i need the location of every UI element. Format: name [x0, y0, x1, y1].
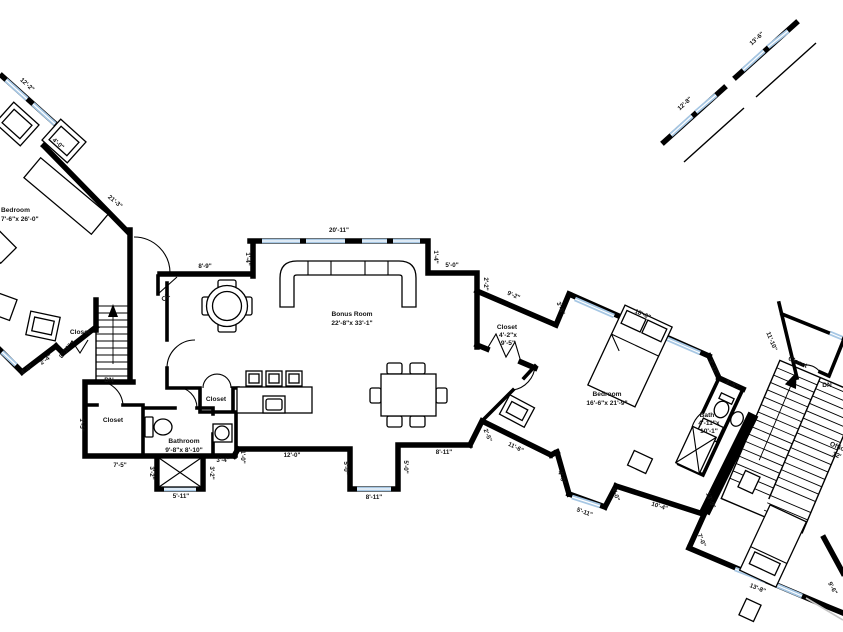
armchair-2 — [42, 119, 86, 163]
room-size-bedroom-left: 7'-6"x 26'-0" — [1, 216, 39, 223]
room-size-closet-corridor-1: 4'-2"x — [499, 332, 517, 339]
door-arc-bonus-west — [167, 340, 195, 368]
dim-bonus-left-step: 1'-4" — [244, 252, 251, 265]
dim-deck-b: 13'-6" — [748, 31, 765, 47]
dim-closet-right-wall: 11'-10" — [764, 331, 778, 352]
dim-bonus-left-jog: 8'-9" — [198, 263, 211, 270]
dim-bonus-right-jog: 5'-0" — [445, 262, 458, 269]
room-label-closet-corridor: Closet — [497, 324, 518, 331]
room-size-bedroom-right: 16'-6"x 21'-9" — [586, 400, 627, 407]
room-size-bath-1: 4'-11"x — [698, 420, 720, 427]
room-size-bathroom: 9'-8"x 8'-10" — [165, 447, 203, 454]
toilet-left — [145, 417, 172, 437]
room-size-bath-2: 10'-1" — [700, 428, 718, 435]
tub — [159, 458, 201, 487]
dim-bonus-right-step: 1'-4" — [432, 250, 439, 263]
dim-bump-r: 5'-0" — [402, 460, 409, 473]
dim-corridor-step: 2'-2" — [482, 277, 489, 290]
armchair-3 — [26, 311, 60, 341]
dim-bonus-top: 20'-11" — [329, 227, 349, 234]
kitchen-counter — [237, 371, 312, 413]
dim-deck-a: 12'-8" — [676, 96, 693, 112]
dim-corridor-top: 9'-2" — [506, 290, 521, 302]
room-label-bedroom-left: Bedroom — [1, 207, 30, 214]
floor-plan-page: Bedroom 7'-6"x 26'-0" Bonus Room 22'-8"x… — [0, 0, 843, 632]
round-table — [202, 280, 252, 332]
dim-bonus-bottom: 8'-11" — [436, 449, 453, 456]
room-label-bonus: Bonus Room — [331, 311, 372, 318]
floor-plan-canvas: Bedroom 7'-6"x 26'-0" Bonus Room 22'-8"x… — [0, 0, 843, 632]
staircase-left — [96, 300, 130, 380]
dim-br-jog2: 3'-5" — [724, 379, 739, 391]
stairs-right-dn-label: DN — [822, 382, 832, 389]
room-label-closet-kitchen: Closet — [206, 396, 227, 403]
cut-chair-2 — [0, 292, 17, 321]
door-arc-closet-kitchen — [203, 374, 231, 388]
room-label-bathroom: Bathroom — [168, 438, 199, 445]
stairs-left-dn-label: DN — [104, 377, 114, 384]
dim-br-jog1: 3'-11" — [706, 358, 720, 376]
dim-brb-win: 13'-8" — [748, 582, 766, 595]
dim-tub-win: 5'-11" — [173, 493, 190, 500]
dim-kitchen-wall: 12'-0" — [284, 452, 301, 459]
table-bottom-right — [739, 598, 761, 621]
room-label-bedroom-right: Bedroom — [593, 391, 622, 398]
dim-brb-right: 9'-6" — [826, 581, 838, 596]
room-label-closet-lower-left: Closet — [103, 417, 124, 424]
dim-ext-c: 8'-10" — [58, 342, 74, 360]
room-label-cl: CL — [160, 292, 171, 303]
armchair-1 — [0, 102, 39, 146]
bed-bottom-right — [740, 505, 807, 587]
room-label-closet-upper-left: Closet — [70, 329, 91, 336]
dim-tub-r: 3'-2" — [208, 466, 215, 479]
dim-bump-l: 5'-0" — [342, 461, 349, 474]
dim-bump-win: 8'-11" — [366, 494, 383, 501]
room-size-bonus: 22'-8"x 33'-1" — [331, 320, 372, 327]
dim-kitchen-step: 1'-0" — [239, 450, 246, 463]
dim-closet-left-h: 1'-5" — [78, 418, 85, 431]
dim-se-jog: 2'-5" — [482, 428, 494, 443]
cut-chair-1 — [0, 231, 16, 264]
exterior-walls — [0, 23, 843, 613]
nightstand-right — [628, 451, 653, 474]
room-size-closet-corridor-2: 9'-5" — [501, 340, 515, 347]
dim-wall-7-0: 7'-0" — [696, 533, 708, 548]
dining-table — [370, 363, 447, 427]
dim-tub-l: 3'-2" — [148, 466, 155, 479]
door-arc-bathroom — [176, 387, 197, 408]
sink-left — [213, 424, 232, 442]
dimension-labels: 12'-2" 4'-0" 21'-3" 4'-0" 2'-4" 8'-10" 1… — [18, 31, 838, 596]
sectional-sofa — [280, 261, 416, 307]
room-label-bath: Bath — [700, 412, 715, 419]
dim-closet-left-w: 7'-5" — [113, 462, 126, 469]
door-arc-hall — [134, 237, 170, 273]
dim-bath-step: 3'-4" — [216, 457, 229, 464]
dim-wall-top-left: 21'-3" — [106, 194, 123, 210]
dim-br-bump-win: 5'-11" — [576, 506, 594, 518]
